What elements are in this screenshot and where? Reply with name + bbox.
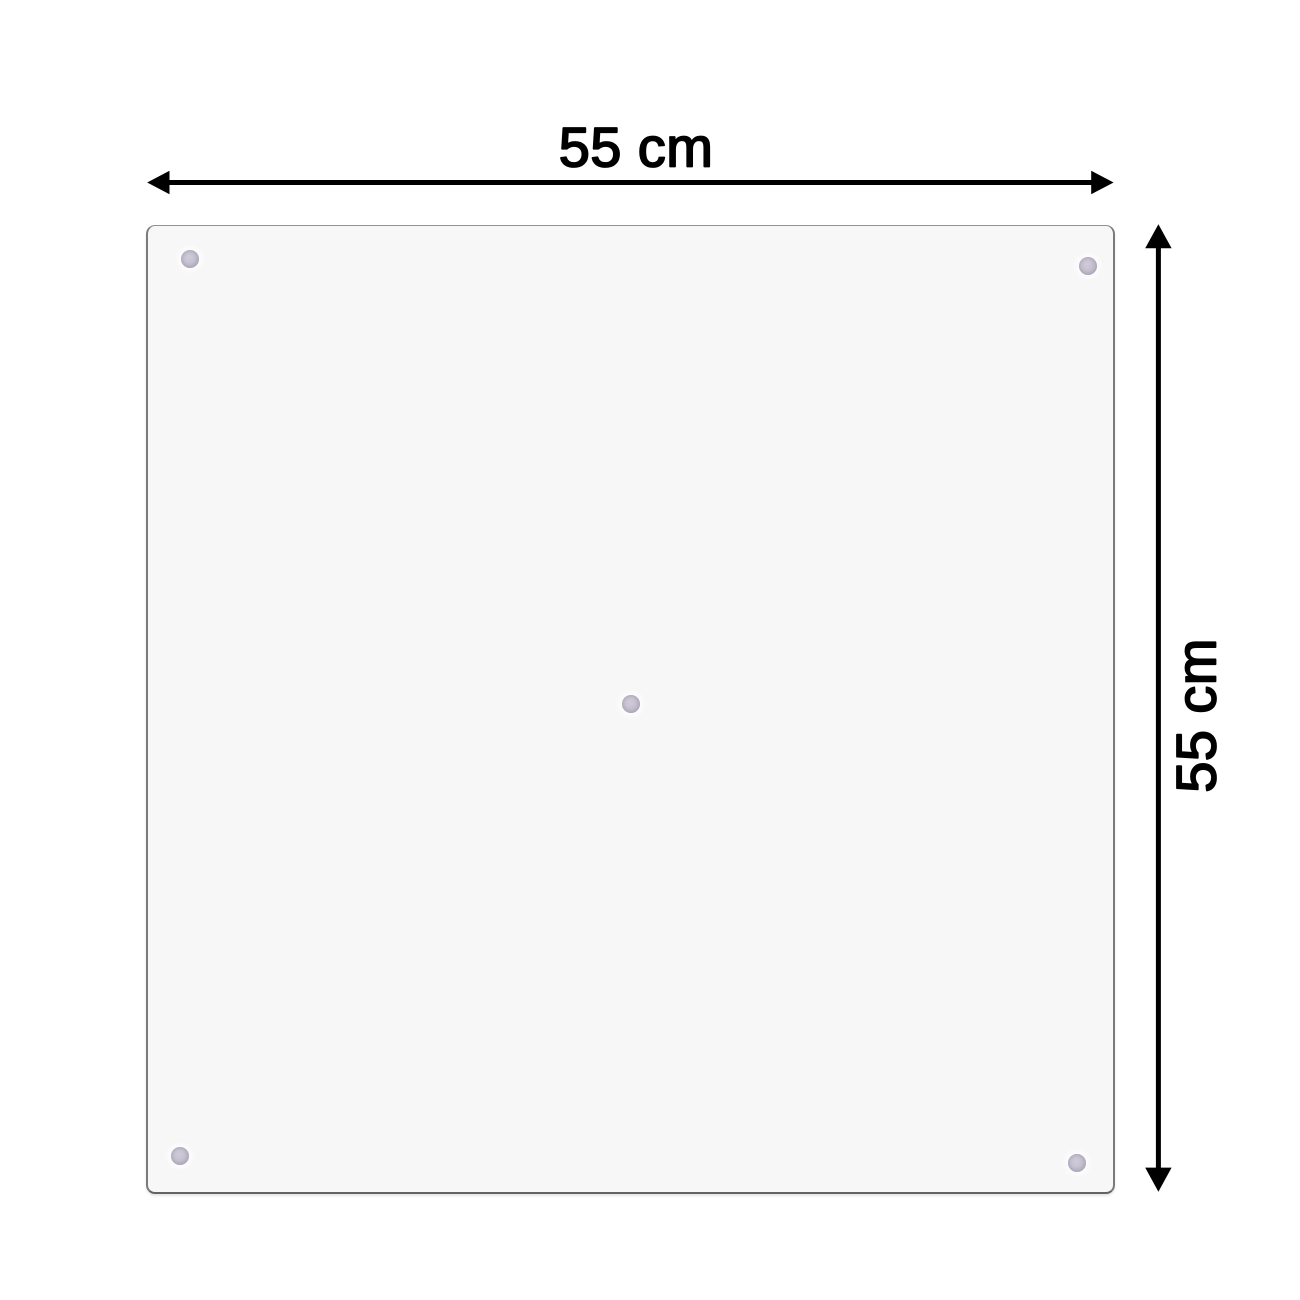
svg-text:55 cm: 55 cm: [1164, 638, 1227, 793]
svg-text:55 cm: 55 cm: [559, 116, 714, 179]
